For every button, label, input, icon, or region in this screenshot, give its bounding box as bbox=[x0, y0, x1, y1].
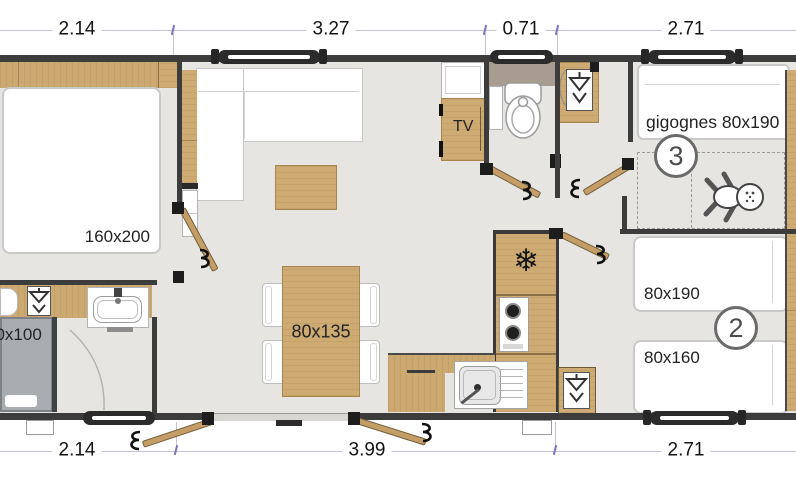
chair-back bbox=[370, 343, 377, 381]
kitchen-cabinet bbox=[388, 372, 445, 412]
door-handle-icon bbox=[126, 430, 144, 452]
door-hinge bbox=[202, 412, 214, 425]
wc-side-panel bbox=[489, 86, 503, 130]
dim-bottom-1: 2.14 bbox=[53, 440, 102, 462]
sofa-chaise bbox=[196, 68, 244, 201]
window-pane bbox=[660, 416, 729, 420]
tv-cabinet: TV bbox=[441, 98, 488, 161]
door-hinge bbox=[173, 271, 184, 283]
window-pane bbox=[658, 55, 726, 59]
wall-bathroom-top bbox=[0, 280, 157, 285]
sofa-seat-line bbox=[244, 92, 245, 139]
tv-label: TV bbox=[453, 118, 473, 136]
chair-back bbox=[265, 343, 272, 381]
wall-bedroom3-lower bbox=[622, 196, 627, 233]
gigogne-bed: gigognes 80x190 bbox=[637, 64, 790, 140]
wall-bedroom1 bbox=[177, 62, 182, 209]
dim-top-2: 3.27 bbox=[307, 19, 356, 41]
dimension-tick bbox=[174, 445, 178, 455]
double-bed: 160x200 bbox=[2, 87, 161, 254]
coffee-table bbox=[275, 165, 337, 210]
headboard-cabinet bbox=[158, 62, 178, 88]
hanger-box bbox=[27, 286, 51, 316]
shower-glass bbox=[52, 317, 57, 412]
door-hinge bbox=[480, 163, 493, 175]
sofa-back-line bbox=[198, 91, 359, 92]
kitchen-sink bbox=[454, 361, 528, 409]
room3-badge: 3 bbox=[654, 134, 698, 178]
window-bedroom2 bbox=[650, 411, 739, 425]
cabinet-seam bbox=[182, 140, 197, 141]
tall-cabinet bbox=[182, 70, 197, 183]
toilet-icon bbox=[502, 80, 544, 142]
utility-box-inner bbox=[445, 66, 481, 94]
tv-cabinet-handle bbox=[439, 104, 443, 116]
window-cap bbox=[319, 49, 327, 64]
double-bed-size-label: 160x200 bbox=[85, 227, 150, 247]
extension-line bbox=[173, 33, 174, 56]
exterior-step bbox=[26, 420, 54, 435]
bed-190-size-label: 80x190 bbox=[644, 284, 700, 304]
cabinet-handle bbox=[407, 370, 435, 373]
cabinet-seam bbox=[18, 62, 19, 88]
wall-bathroom-right bbox=[152, 317, 157, 413]
towel bbox=[0, 288, 18, 316]
fridge-divider bbox=[496, 294, 556, 296]
wall-wc-left bbox=[484, 62, 489, 165]
window-cap bbox=[211, 49, 219, 64]
dining-table: 80x135 bbox=[282, 266, 360, 397]
dining-table-size-label: 80x135 bbox=[291, 321, 350, 342]
pillow-line bbox=[772, 241, 773, 303]
dim-top-3: 0.71 bbox=[497, 19, 546, 41]
window-pane bbox=[498, 55, 545, 59]
counter-divider bbox=[496, 353, 556, 355]
utility-box bbox=[441, 62, 488, 100]
window-pane bbox=[228, 55, 310, 59]
dim-bottom-3: 2.71 bbox=[662, 440, 711, 462]
window-cap bbox=[643, 410, 651, 425]
door-handle-icon bbox=[196, 248, 214, 270]
door-hinge bbox=[348, 412, 360, 425]
hanger-box bbox=[563, 372, 590, 409]
shower-size-label: 80x100 bbox=[0, 325, 42, 345]
hanger-icon bbox=[564, 373, 589, 408]
bathroom-door-arc bbox=[60, 322, 120, 414]
window-cap bbox=[641, 49, 649, 64]
chair-back bbox=[265, 286, 272, 324]
wall-bedroom2-top bbox=[620, 229, 796, 234]
hob-controls bbox=[503, 344, 523, 349]
window-bedroom3 bbox=[648, 50, 736, 64]
burner bbox=[505, 303, 521, 319]
window-cap bbox=[735, 49, 743, 64]
window-cap bbox=[738, 410, 746, 425]
single-bed-190: 80x190 bbox=[633, 236, 789, 312]
room2-badge: 2 bbox=[714, 306, 758, 350]
pillow-line bbox=[772, 345, 773, 405]
tv-cabinet-divider bbox=[480, 107, 481, 151]
drainer-line bbox=[499, 390, 523, 391]
dim-top-1: 2.14 bbox=[53, 19, 102, 41]
window-wc bbox=[490, 50, 553, 64]
door-handle-icon bbox=[566, 178, 584, 200]
faucet-icon bbox=[114, 288, 122, 297]
burner bbox=[505, 325, 521, 341]
door-handle-icon bbox=[518, 180, 536, 202]
entry-threshold bbox=[276, 420, 302, 426]
sheet-line bbox=[645, 84, 780, 85]
drainer-line bbox=[499, 376, 523, 377]
room3-number: 3 bbox=[668, 141, 683, 172]
tv-cabinet-handle bbox=[439, 141, 443, 157]
room2-number: 2 bbox=[728, 313, 743, 344]
shower-step bbox=[5, 395, 37, 407]
hanger-box bbox=[566, 69, 593, 111]
exterior-step bbox=[522, 420, 552, 435]
window-bathroom bbox=[83, 411, 155, 425]
single-bed-160: 80x160 bbox=[633, 340, 789, 414]
wall-bedroom3-upper bbox=[628, 62, 633, 142]
door-hinge bbox=[622, 158, 634, 170]
dim-bottom-2: 3.99 bbox=[343, 440, 392, 462]
floor-plan: 2.14 3.27 0.71 2.71 2.14 3.99 2.71 160x2… bbox=[0, 0, 796, 480]
right-wardrobe bbox=[785, 70, 796, 411]
drainer-line bbox=[499, 383, 523, 384]
drainer-line bbox=[499, 397, 523, 398]
dim-top-4: 2.71 bbox=[662, 19, 711, 41]
hanger-icon bbox=[28, 287, 50, 315]
drainer-line bbox=[499, 369, 523, 370]
window-pane bbox=[92, 416, 146, 420]
headboard-shelf bbox=[0, 62, 158, 88]
snowflake-icon: ❄ bbox=[508, 243, 544, 279]
gigogne-bed-label: gigognes 80x190 bbox=[646, 112, 779, 133]
bed-160-size-label: 80x160 bbox=[644, 348, 700, 368]
door-hinge bbox=[172, 202, 184, 214]
door-hinge bbox=[549, 228, 563, 239]
hanger-icon bbox=[567, 70, 592, 110]
wardrobe-end-cap bbox=[590, 62, 599, 72]
faucet-knob bbox=[115, 298, 121, 304]
window-living bbox=[218, 50, 320, 64]
hob-icon bbox=[499, 297, 529, 352]
dimension-tick bbox=[553, 445, 557, 455]
door-handle-icon bbox=[592, 244, 610, 266]
chair-back bbox=[370, 286, 377, 324]
wall-wc-right bbox=[555, 62, 560, 198]
baby-icon bbox=[702, 168, 766, 228]
wardrobe-seam bbox=[787, 310, 796, 311]
door-handle-icon bbox=[418, 422, 436, 444]
